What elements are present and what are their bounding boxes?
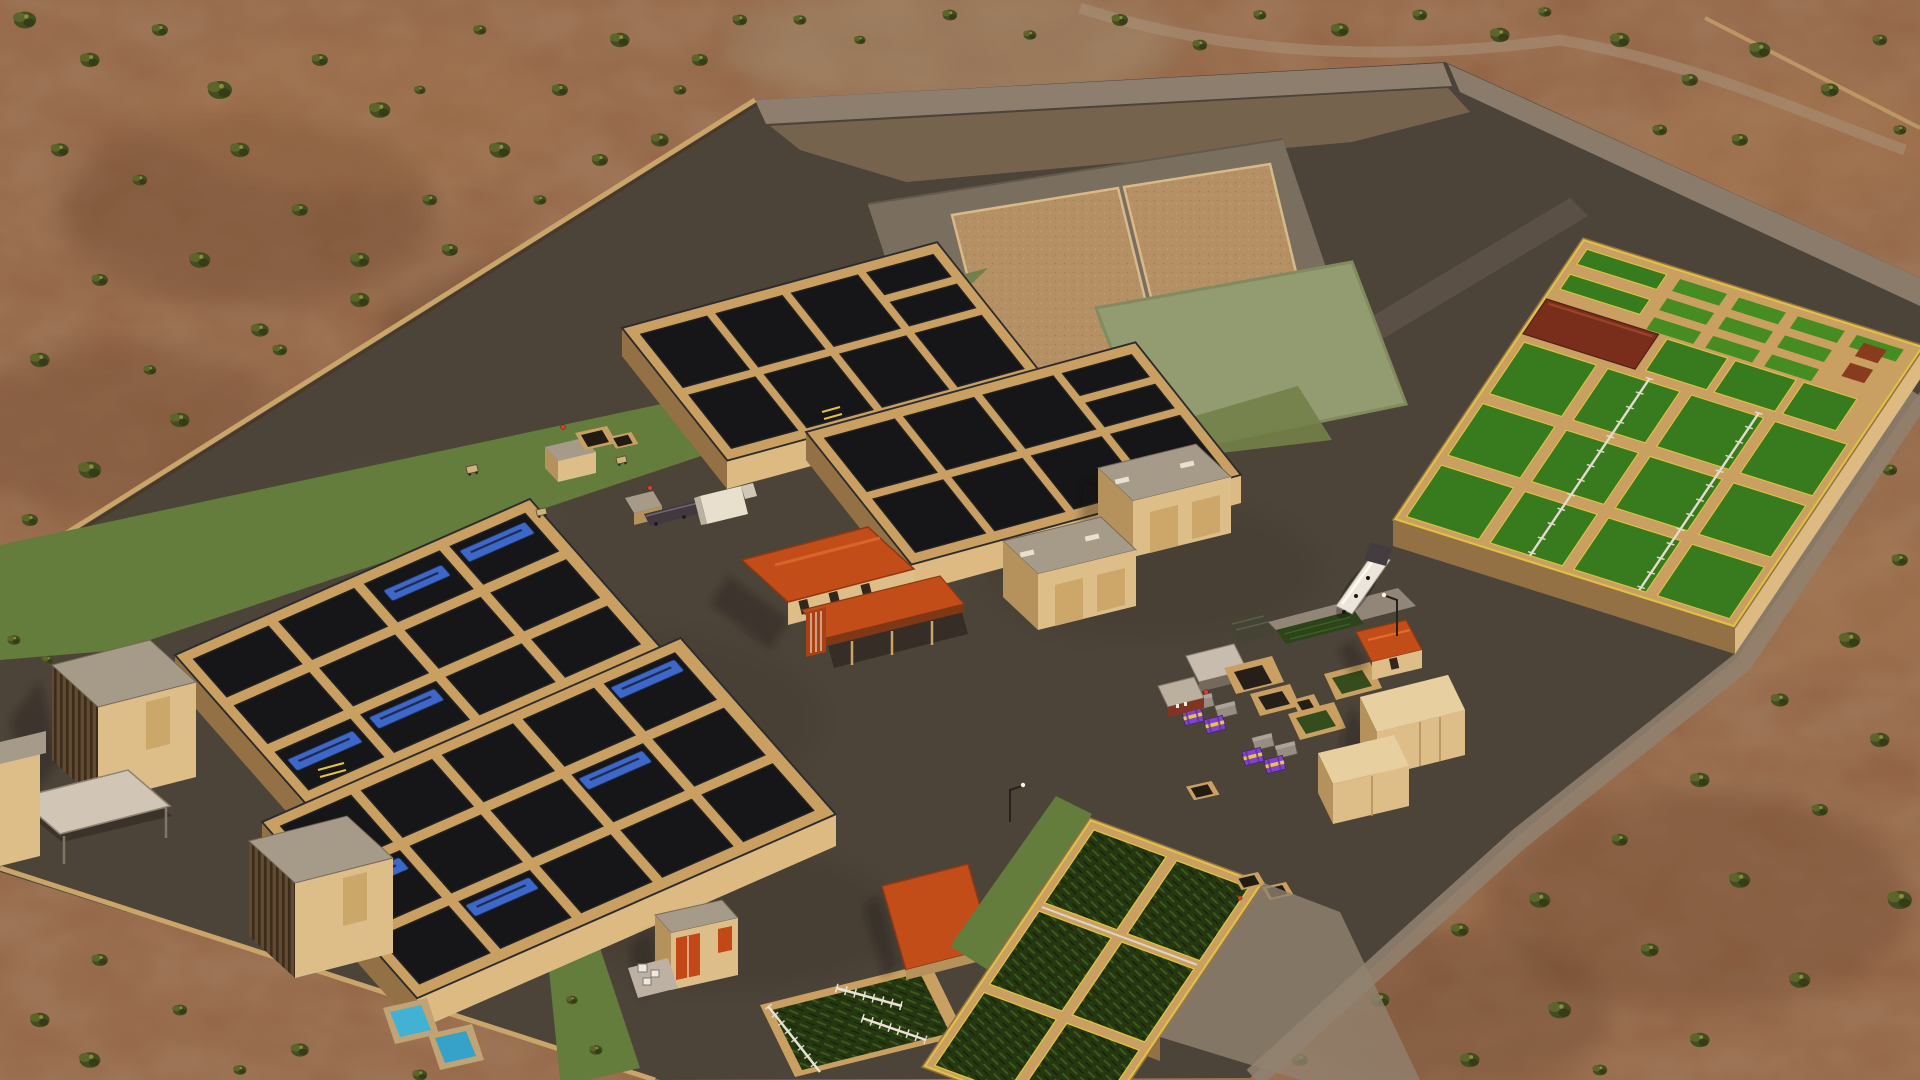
scene-render: Wastewater treatment plant — aerial 3D s… bbox=[0, 0, 1920, 1080]
light-wash bbox=[0, 0, 1920, 1080]
render-viewport: Wastewater treatment plant — aerial 3D s… bbox=[0, 0, 1920, 1080]
